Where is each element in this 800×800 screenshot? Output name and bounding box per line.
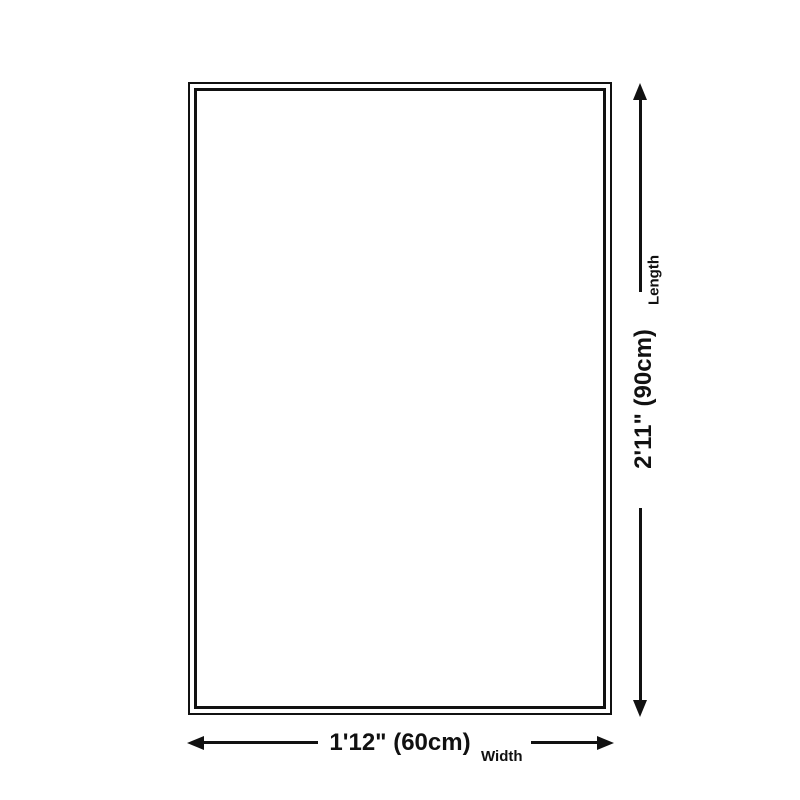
width-dimension-line-left — [203, 741, 318, 744]
arrow-down-icon — [633, 700, 647, 717]
product-outline-outer-border — [188, 82, 612, 715]
length-dimension-label: Length — [647, 255, 662, 305]
arrow-right-icon — [597, 736, 614, 750]
length-dimension-value: 2'11" (90cm) — [631, 329, 657, 469]
length-dimension-line-upper — [639, 99, 642, 292]
width-dimension-line-right — [531, 741, 597, 744]
arrow-left-icon — [187, 736, 204, 750]
length-dimension-line-lower — [639, 508, 642, 701]
arrow-up-icon — [633, 83, 647, 100]
width-dimension-label: Width — [481, 749, 523, 764]
product-outline-inner-border — [194, 88, 606, 709]
width-dimension-value: 1'12" (60cm) — [329, 730, 470, 756]
dimension-diagram: 2'11" (90cm) Length 1'12" (60cm) Width — [0, 0, 800, 800]
